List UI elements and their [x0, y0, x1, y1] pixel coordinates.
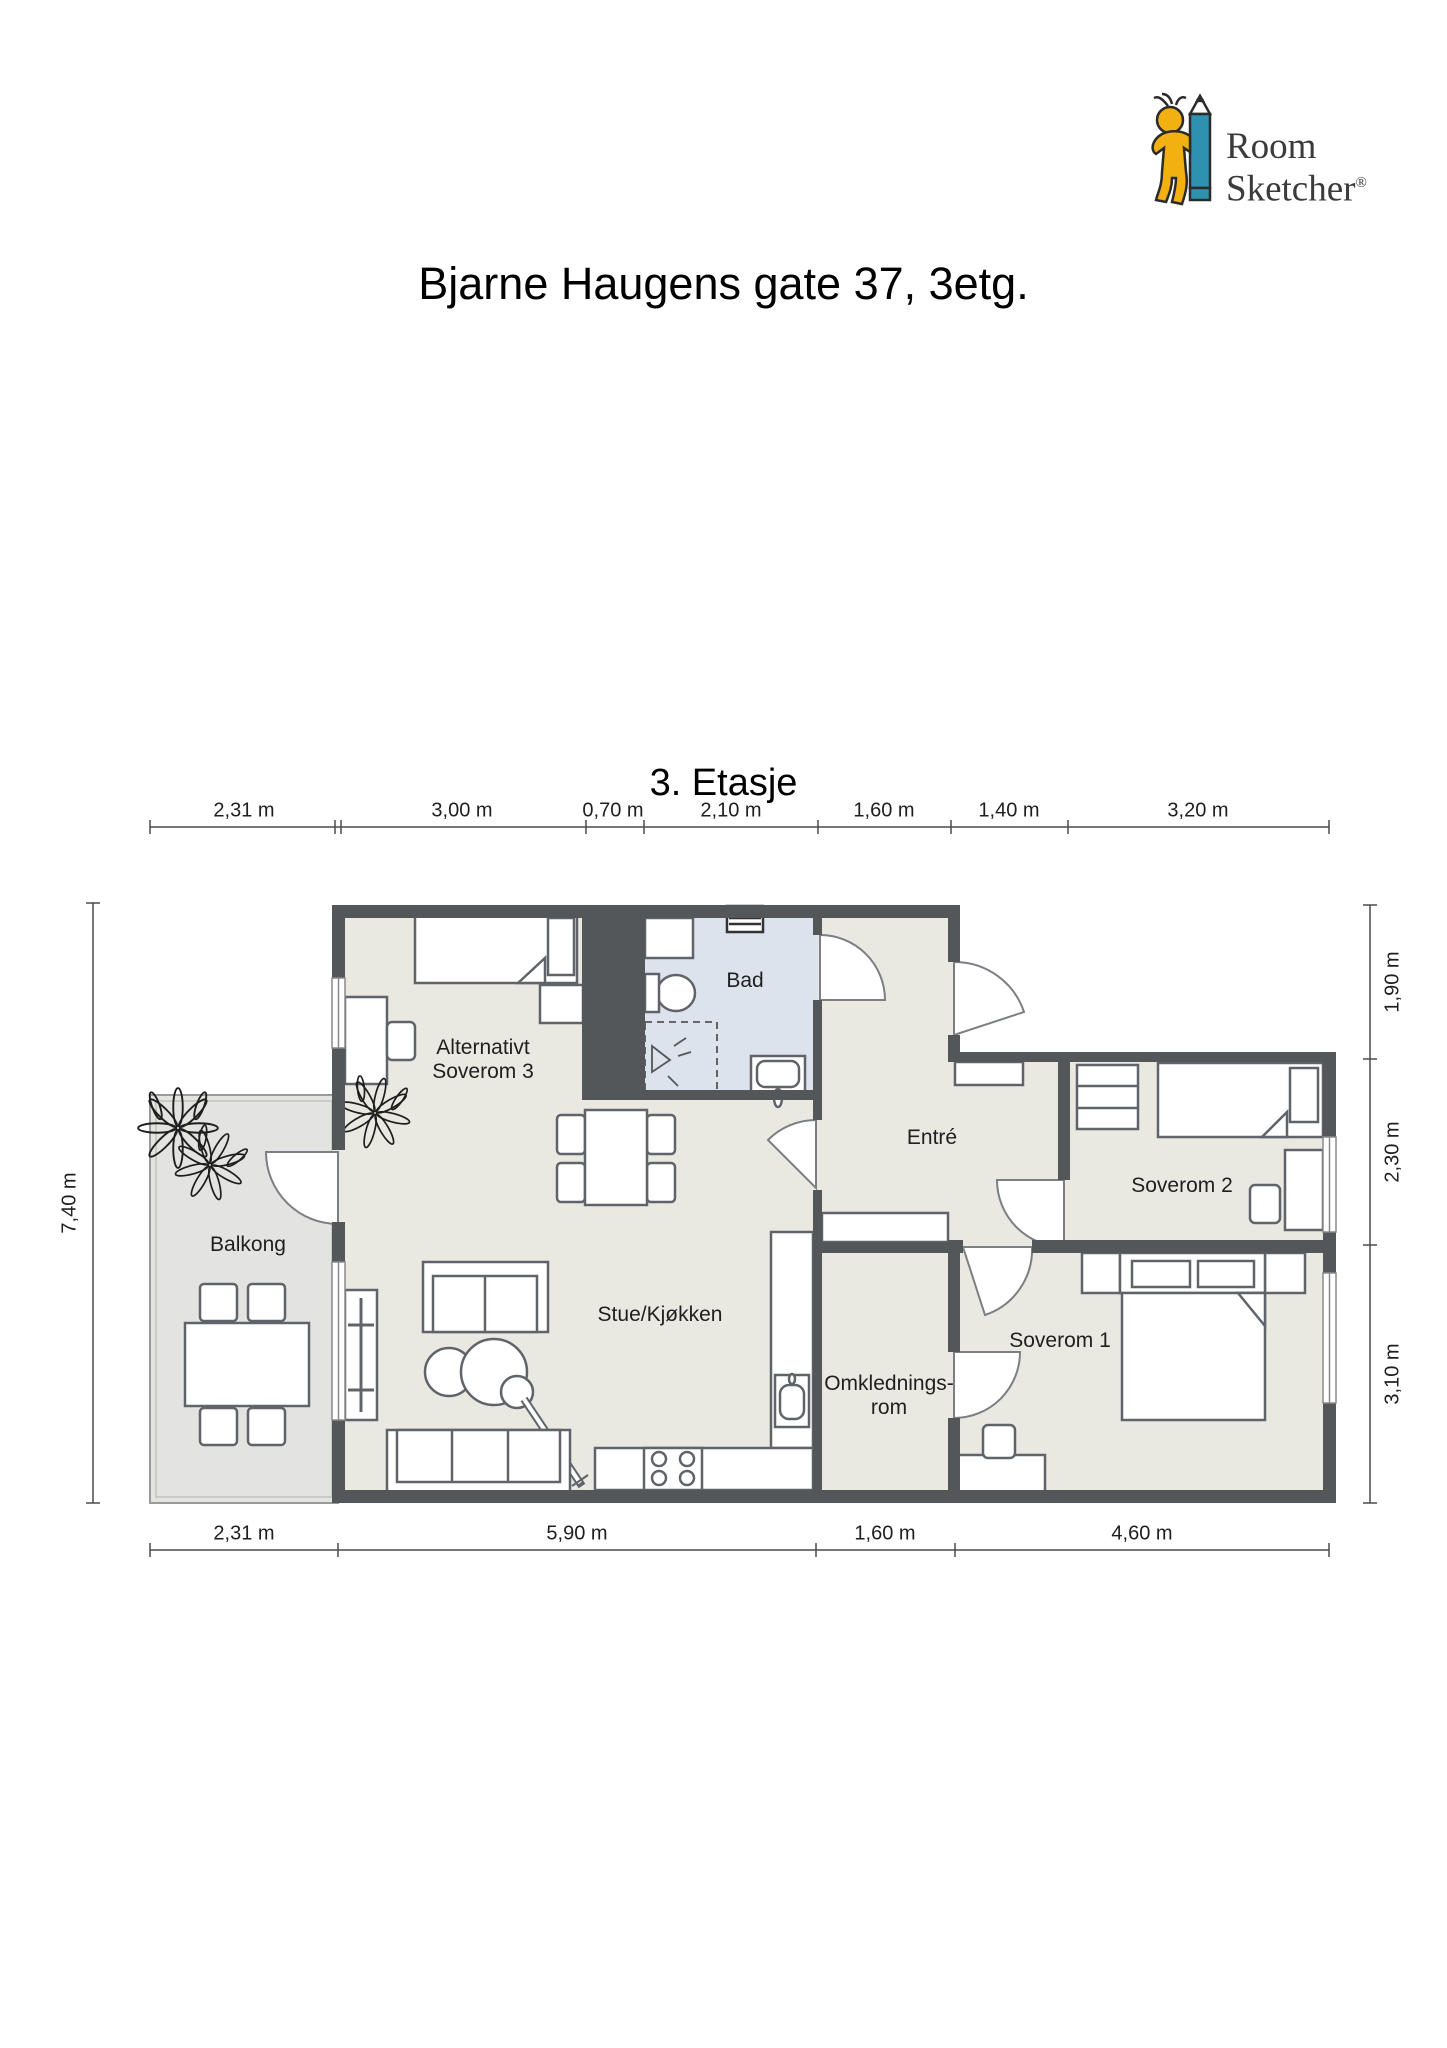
floorplan-page: Room Sketcher® Bjarne Haugens gate 37, 3… — [0, 0, 1447, 2048]
dim-right-1: 1,90 m — [1382, 951, 1405, 1012]
room-label-bad: Bad — [726, 969, 763, 993]
chair-soverom1 — [983, 1425, 1015, 1458]
window-soverom3 — [332, 978, 345, 1048]
window-soverom1 — [1323, 1273, 1336, 1403]
bed-single-soverom2 — [1158, 1063, 1323, 1137]
dim-top-7: 3,20 m — [1167, 800, 1228, 823]
duct-shaft — [582, 905, 645, 1100]
wall-stue-entre-2 — [813, 1190, 822, 1490]
room-label-entre: Entré — [907, 1126, 957, 1150]
roomsketcher-logo-text: Room Sketcher® — [1226, 128, 1367, 207]
desk-soverom2 — [1285, 1150, 1323, 1230]
dim-top-2: 3,00 m — [431, 800, 492, 823]
dim-top-3: 0,70 m — [582, 800, 643, 823]
toilet — [645, 974, 695, 1012]
wall-top-right-section — [948, 1052, 1336, 1062]
wall-stue-entre-1 — [813, 1100, 822, 1120]
dim-bottom-2: 5,90 m — [546, 1523, 607, 1546]
room-label-soverom3: Alternativt Soverom 3 — [432, 1036, 534, 1084]
wall-soverom1-top-2 — [1032, 1240, 1336, 1253]
wall-omkl-right-2 — [948, 1418, 960, 1490]
dim-left-1: 7,40 m — [59, 1172, 82, 1233]
room-label-soverom1: Soverom 1 — [1009, 1329, 1111, 1353]
room-label-stue: Stue/Kjøkken — [598, 1303, 723, 1327]
registered-mark: ® — [1355, 175, 1366, 191]
hall-wardrobe — [822, 1213, 948, 1242]
dim-top-1: 2,31 m — [213, 800, 274, 823]
roomsketcher-mascot-icon — [1148, 92, 1220, 214]
wall-bad-bottom — [645, 1090, 822, 1100]
radiator-stue — [345, 1290, 377, 1420]
dim-bottom-3: 1,60 m — [854, 1523, 915, 1546]
wall-right-1 — [1323, 1052, 1336, 1137]
wall-left-3 — [332, 1222, 345, 1262]
wall-left-1 — [332, 905, 345, 978]
sofa-two-seat — [423, 1262, 548, 1332]
stove — [644, 1448, 702, 1490]
dimension-line-right — [1363, 905, 1377, 1503]
wall-bottom — [332, 1490, 1336, 1503]
logo-word-sketcher: Sketcher® — [1226, 165, 1367, 207]
room-label-balkong: Balkong — [210, 1233, 286, 1257]
window-stue — [332, 1262, 345, 1420]
roomsketcher-logo: Room Sketcher® — [1148, 92, 1367, 214]
wall-omkl-right-1 — [948, 1253, 960, 1352]
logo-word-room: Room — [1226, 128, 1367, 165]
dim-bottom-4: 4,60 m — [1111, 1523, 1172, 1546]
wall-omkl-top — [813, 1242, 960, 1253]
kitchen-sink — [775, 1374, 809, 1427]
hall-shelf — [955, 1062, 1023, 1085]
room-label-soverom2: Soverom 2 — [1131, 1174, 1233, 1198]
chair-soverom2 — [1250, 1185, 1280, 1223]
desk-soverom3 — [345, 997, 387, 1084]
wall-bad-right-2 — [813, 1000, 822, 1100]
dimension-line-left — [86, 903, 100, 1503]
chair-soverom3 — [387, 1022, 415, 1060]
dim-top-5: 1,60 m — [853, 800, 914, 823]
wall-bad-right-1 — [813, 918, 822, 935]
window-soverom2 — [1323, 1137, 1336, 1232]
dim-right-3: 3,10 m — [1382, 1343, 1405, 1404]
dim-top-4: 2,10 m — [700, 800, 761, 823]
wall-soverom2-left — [1058, 1052, 1070, 1180]
entrance-door-swing — [954, 962, 1024, 1035]
wall-top — [332, 905, 960, 918]
dim-top-6: 1,40 m — [978, 800, 1039, 823]
bed-single-soverom3 — [415, 910, 577, 983]
wall-right-3 — [1323, 1403, 1336, 1503]
dim-right-2: 2,30 m — [1382, 1121, 1405, 1182]
wall-left-2 — [332, 1048, 345, 1150]
dresser-soverom2 — [1077, 1065, 1138, 1129]
wall-soverom1-top-1 — [948, 1240, 963, 1253]
room-label-omkledningsrom: Omklednings- rom — [824, 1372, 954, 1420]
sofa-three-seat — [387, 1430, 570, 1498]
wall-entrance-upper — [948, 905, 960, 962]
dim-bottom-1: 2,31 m — [213, 1523, 274, 1546]
nightstand-soverom3 — [540, 985, 583, 1023]
page-title: Bjarne Haugens gate 37, 3etg. — [0, 258, 1447, 310]
